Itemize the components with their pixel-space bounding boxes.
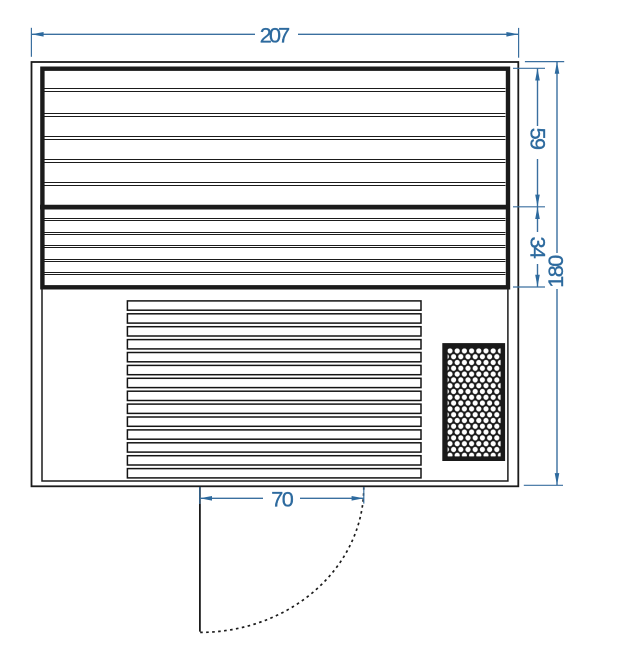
svg-text:207: 207 (260, 22, 290, 47)
svg-text:180: 180 (543, 255, 568, 288)
svg-text:59: 59 (525, 128, 550, 150)
svg-text:70: 70 (271, 486, 294, 511)
